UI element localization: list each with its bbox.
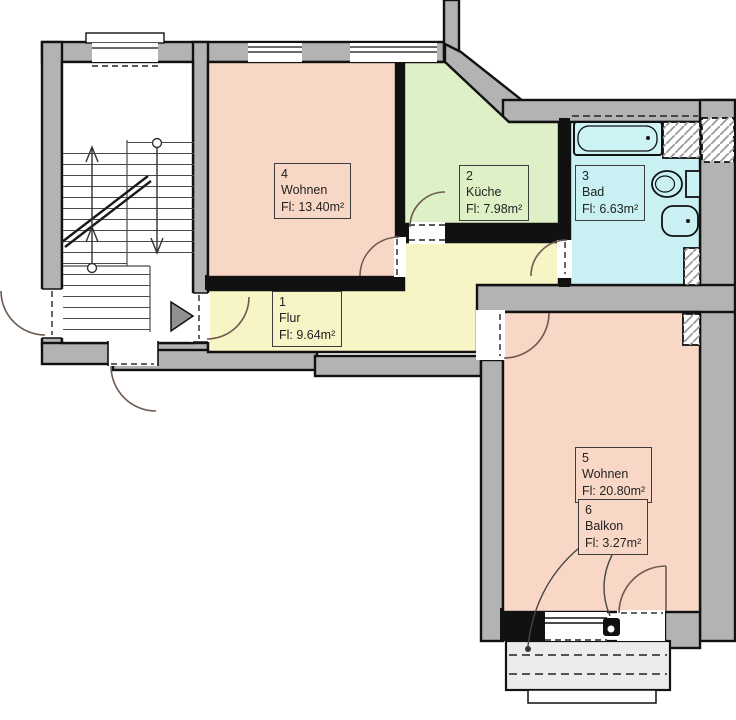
exterior-door-left-swing — [1, 291, 45, 335]
room-number: 4 — [281, 166, 344, 182]
room-area: Fl: 13.40m² — [281, 199, 344, 215]
room-area: Fl: 3.27m² — [585, 535, 641, 551]
balcony-window — [545, 612, 607, 641]
room-name: Flur — [279, 310, 335, 326]
room-label-wohnen-5: 5 Wohnen Fl: 20.80m² — [575, 447, 652, 503]
room-label-bad: 3 Bad Fl: 6.63m² — [575, 165, 645, 221]
bathtub-drain — [646, 136, 650, 140]
balcony-door-handle — [603, 618, 620, 636]
wall-wing-left — [481, 360, 503, 641]
wohnen4-door-opening — [394, 237, 406, 277]
room-label-kueche: 2 Küche Fl: 7.98m² — [459, 165, 529, 221]
room-name: Bad — [582, 184, 638, 200]
wall-hall-bottom-right — [315, 356, 481, 376]
washbasin — [662, 206, 698, 236]
stairs-right-flight — [127, 140, 194, 254]
room-name: Balkon — [585, 518, 641, 534]
balcony-door-opening — [617, 610, 665, 641]
room-number: 1 — [279, 294, 335, 310]
stairwell-bottom-door-opening — [108, 341, 158, 366]
room-area: Fl: 6.63m² — [582, 201, 638, 217]
stairs-lower-flight — [63, 266, 150, 332]
stairwell-bottom-door-swing — [111, 366, 156, 411]
room-area: Fl: 20.80m² — [582, 483, 645, 499]
room-area: Fl: 7.98m² — [466, 201, 522, 217]
room-name: Wohnen — [582, 466, 645, 482]
room-label-balkon: 6 Balkon Fl: 3.27m² — [578, 499, 648, 555]
wall-right — [700, 100, 735, 641]
wall-room5-top — [470, 285, 735, 312]
room-name: Wohnen — [281, 182, 344, 198]
room-number: 5 — [582, 450, 645, 466]
room-label-flur: 1 Flur Fl: 9.64m² — [272, 291, 342, 347]
floor-plan: 4 Wohnen Fl: 13.40m² 2 Küche Fl: 7.98m² … — [0, 0, 736, 720]
stairwell-window — [92, 43, 158, 62]
toilet-tank — [686, 171, 700, 197]
room-number: 2 — [466, 168, 522, 184]
toilet — [652, 171, 682, 197]
room-area: Fl: 9.64m² — [279, 327, 335, 343]
room-number: 3 — [582, 168, 638, 184]
floor-plan-drawing — [0, 0, 736, 720]
room-number: 6 — [585, 502, 641, 518]
room-label-wohnen-4: 4 Wohnen Fl: 13.40m² — [274, 163, 351, 219]
room-name: Küche — [466, 184, 522, 200]
entrance-door-opening — [191, 293, 210, 342]
washbasin-tap — [686, 219, 690, 223]
balcony-outer-rail — [528, 690, 656, 703]
stairwell-window-sill — [86, 33, 164, 43]
